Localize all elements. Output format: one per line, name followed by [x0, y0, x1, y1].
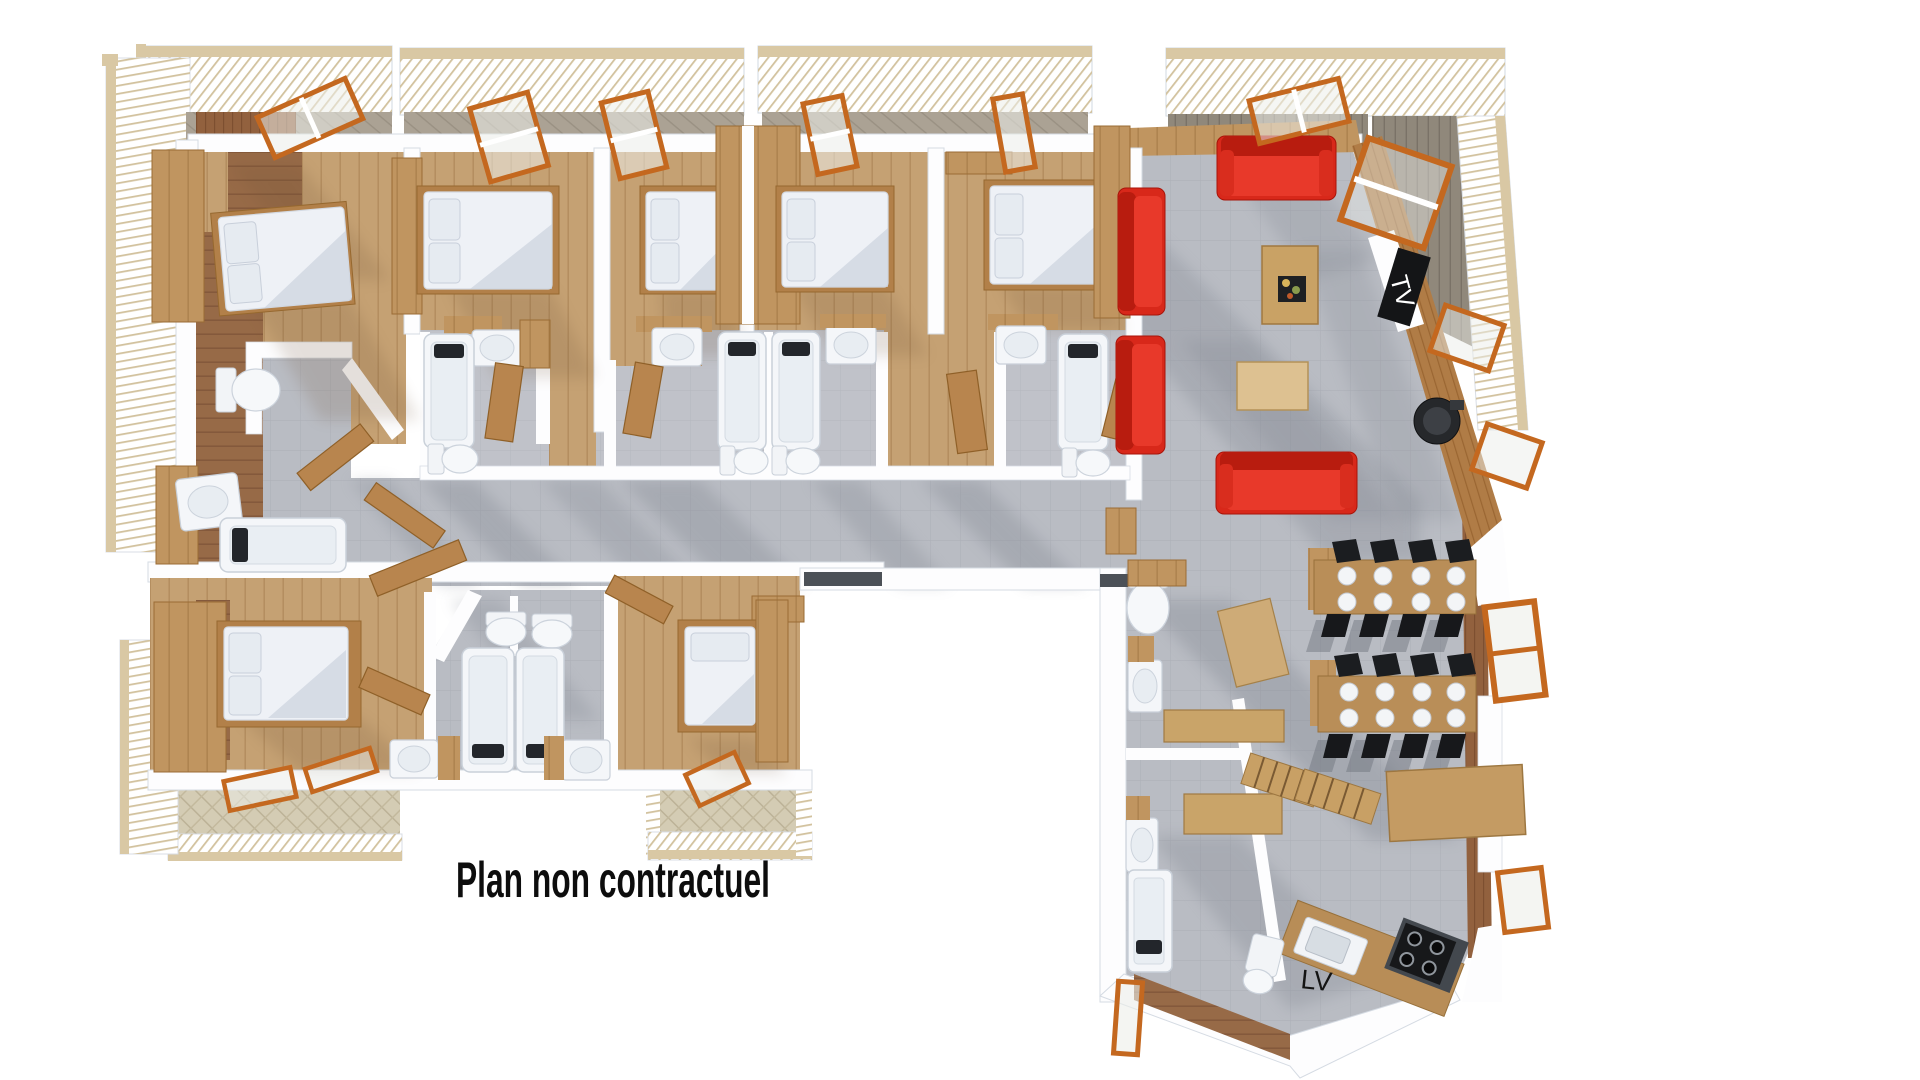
svg-text:Plan non contractuel: Plan non contractuel: [456, 852, 770, 908]
svg-text:LV: LV: [1299, 964, 1333, 997]
